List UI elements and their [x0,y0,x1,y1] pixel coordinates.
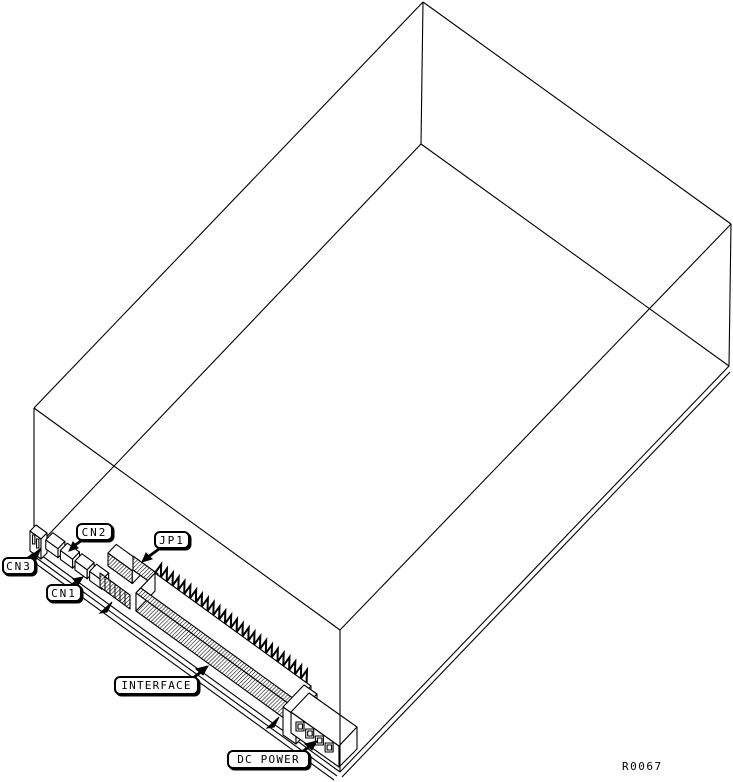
callout-interface-label: INTERFACE [121,679,191,692]
callout-cn1: CN1 [46,584,82,602]
drive-isometric-drawing [0,0,733,782]
callout-cn1-label: CN1 [51,587,77,600]
callout-cn2-label: CN2 [82,526,108,539]
callout-cn3-label: CN3 [6,560,32,573]
callout-cn2: CN2 [76,523,113,541]
callout-dc-power: DC POWER [227,750,310,769]
callout-interface: INTERFACE [114,676,199,695]
callout-jp1-label: JP1 [159,534,185,547]
figure-reference: R0067 [622,760,663,773]
figure-canvas: CN3 CN2 CN1 JP1 INTERFACE DC POWER R0067 [0,0,733,782]
chassis-wireframe [28,2,731,780]
callout-dc-power-label: DC POWER [237,753,300,766]
callout-cn3: CN3 [2,557,36,575]
callout-jp1: JP1 [154,531,190,549]
callout-leaders [25,541,317,752]
